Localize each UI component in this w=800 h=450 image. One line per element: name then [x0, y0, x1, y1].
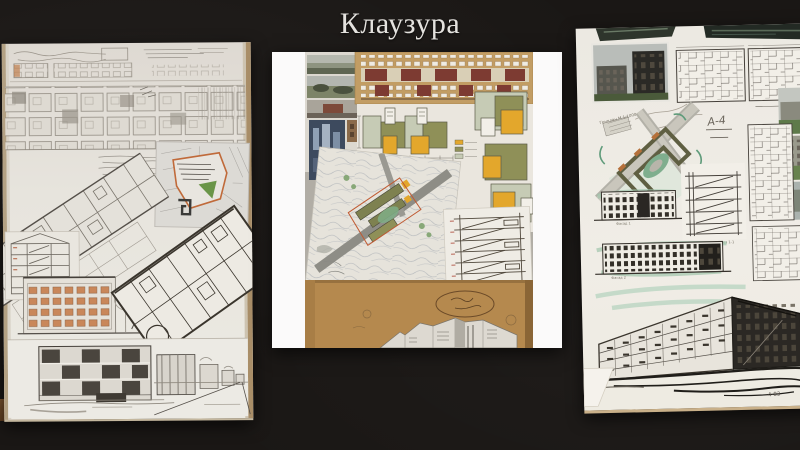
block-facade-band [5, 85, 245, 150]
left-board-drawing [2, 42, 254, 420]
svg-text:А-4: А-4 [706, 113, 727, 128]
bottom-perspective-sheet [8, 338, 251, 418]
diagonal-ink-plan [112, 206, 253, 356]
top-elevation-sketches [10, 47, 242, 82]
floor-plans-lower-right [752, 225, 800, 280]
signature: 4-83 [768, 391, 781, 398]
kraft-paper [305, 280, 533, 348]
center-photo-card [272, 52, 562, 348]
right-board-drawing: Генплан М 1:1000 А-4 Разрез 1-1 Фасад 1 [576, 23, 800, 410]
ink-facade-1: Фасад 1 [593, 190, 682, 226]
floor-plans-mid [748, 124, 794, 221]
slide: Клаузура [0, 0, 800, 450]
right-sketch-board: Генплан М 1:1000 А-4 Разрез 1-1 Фасад 1 [576, 23, 800, 413]
stair-section: Разрез 1-1 [681, 163, 747, 245]
left-sketch-board [2, 42, 254, 422]
ink-facade-2: Фасад 2 [595, 241, 732, 280]
building-photo [591, 42, 670, 104]
foreground-shrub [96, 393, 126, 402]
center-photo-drawing [305, 52, 533, 348]
center-photo [305, 52, 533, 348]
sheet-mark: А-4 [706, 113, 733, 137]
facade2-label: Фасад 2 [611, 276, 626, 280]
facade1-label: Фасад 1 [616, 222, 631, 226]
ink-perspective-building: 4-83 [590, 284, 800, 402]
topo-site-plan [305, 147, 460, 296]
